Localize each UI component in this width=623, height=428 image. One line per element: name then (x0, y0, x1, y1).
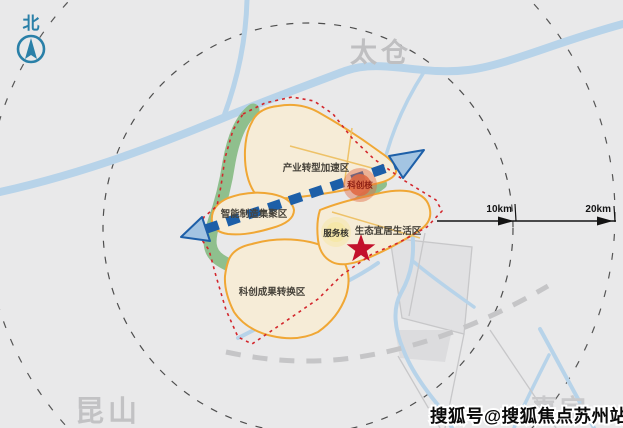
service-core: 服务核 (321, 217, 351, 247)
zone-label-innovation-transfer: 科创成果转换区 (239, 286, 306, 298)
map-background (0, 0, 623, 428)
city-label-taicang: 太仓 (350, 38, 412, 68)
zone-label-smart-manufacturing: 智能制造集聚区 (221, 208, 288, 220)
core-label: 服务核 (323, 228, 349, 238)
map-canvas: 科创核 服务核 产业转型加速区 智能制造集聚区 科创成果转换区 生态宜居生活区 … (0, 0, 623, 428)
watermark: 搜狐号@搜狐焦点苏州站 (430, 406, 623, 426)
scale-label-10km: 10km (486, 204, 512, 215)
city-label-kunshan: 昆山 (75, 395, 141, 428)
scale-label-20km: 20km (585, 204, 611, 215)
planning-map: 科创核 服务核 产业转型加速区 智能制造集聚区 科创成果转换区 生态宜居生活区 … (0, 0, 623, 428)
north-label: 北 (23, 14, 40, 33)
zone-label-industry-transform: 产业转型加速区 (283, 162, 350, 174)
core-label: 科创核 (347, 180, 373, 190)
zone-label-eco-living: 生态宜居生活区 (355, 225, 422, 237)
